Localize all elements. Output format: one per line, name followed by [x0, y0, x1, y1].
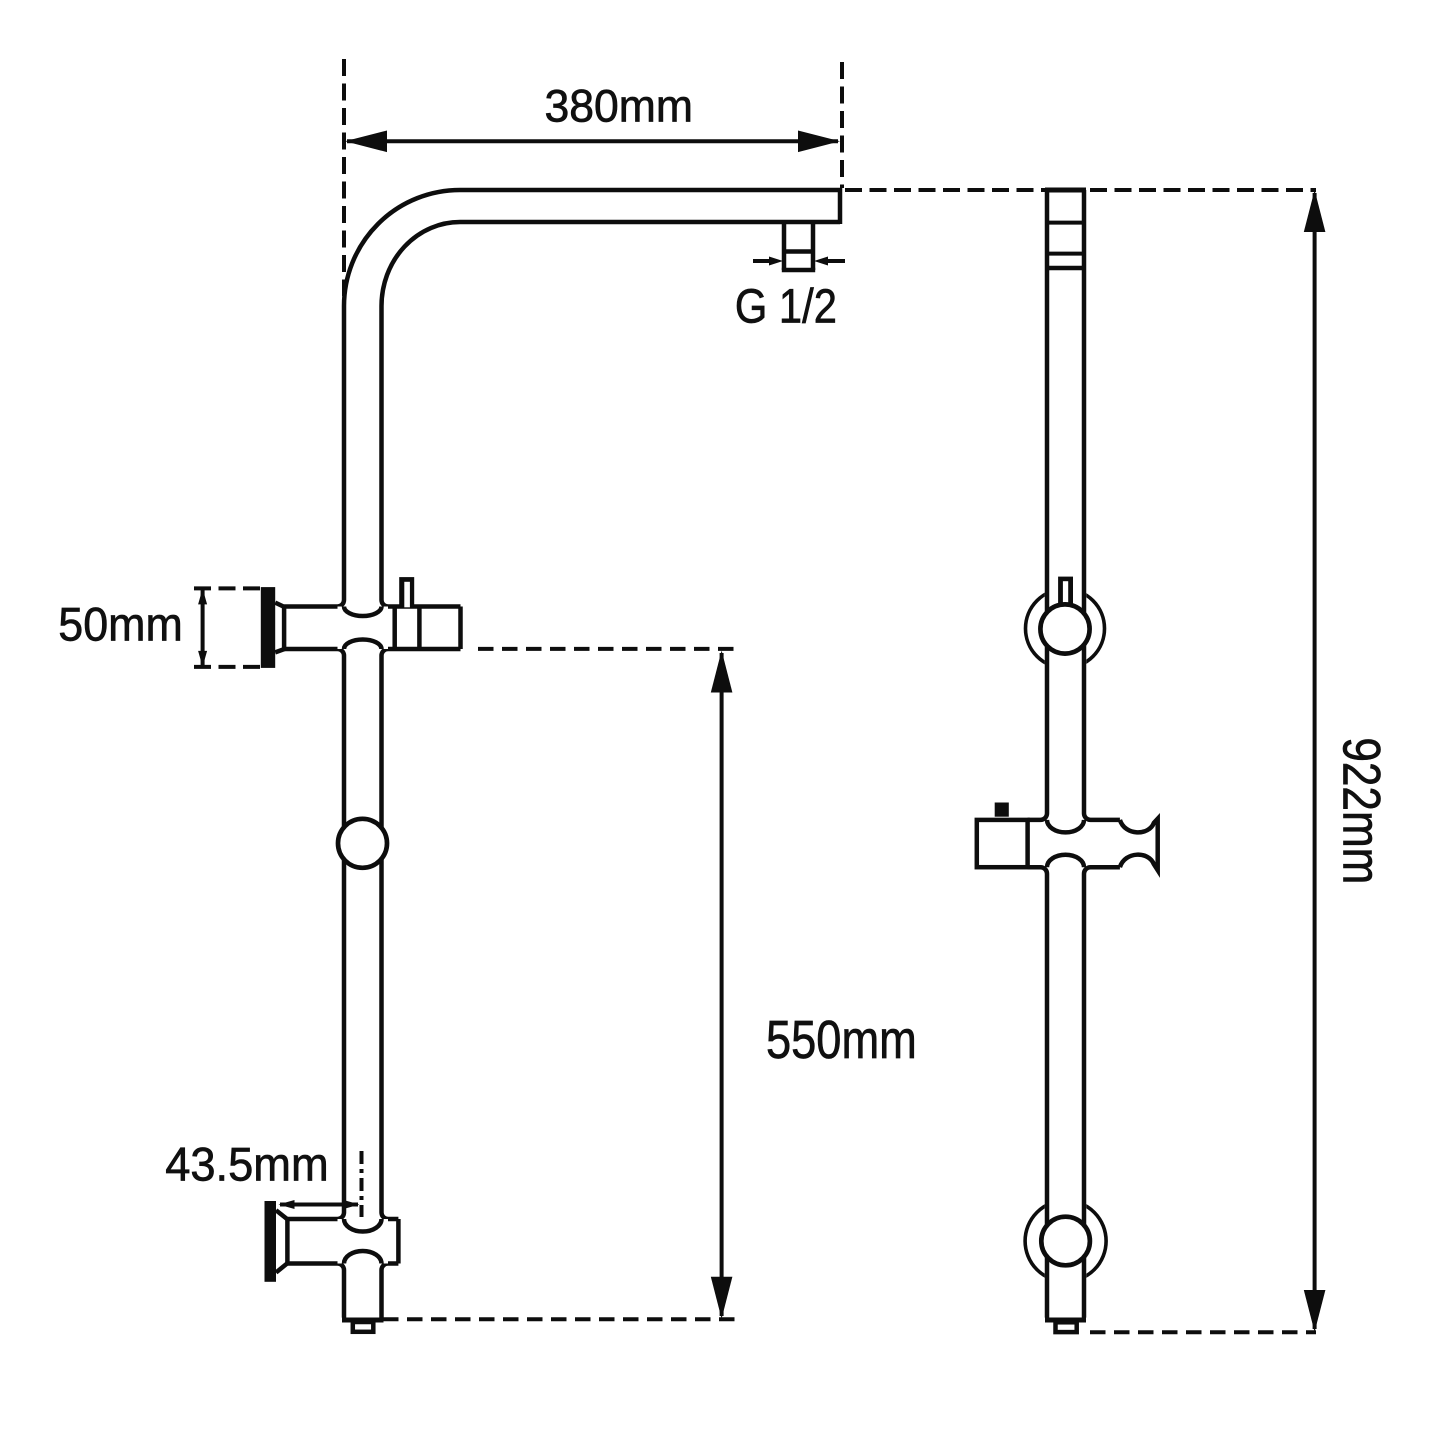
svg-text:50mm: 50mm [58, 597, 183, 650]
svg-text:550mm: 550mm [766, 1010, 917, 1070]
svg-text:G 1/2: G 1/2 [735, 280, 837, 333]
svg-text:380mm: 380mm [545, 80, 694, 131]
svg-text:43.5mm: 43.5mm [165, 1138, 329, 1191]
svg-text:922mm: 922mm [1332, 737, 1391, 884]
